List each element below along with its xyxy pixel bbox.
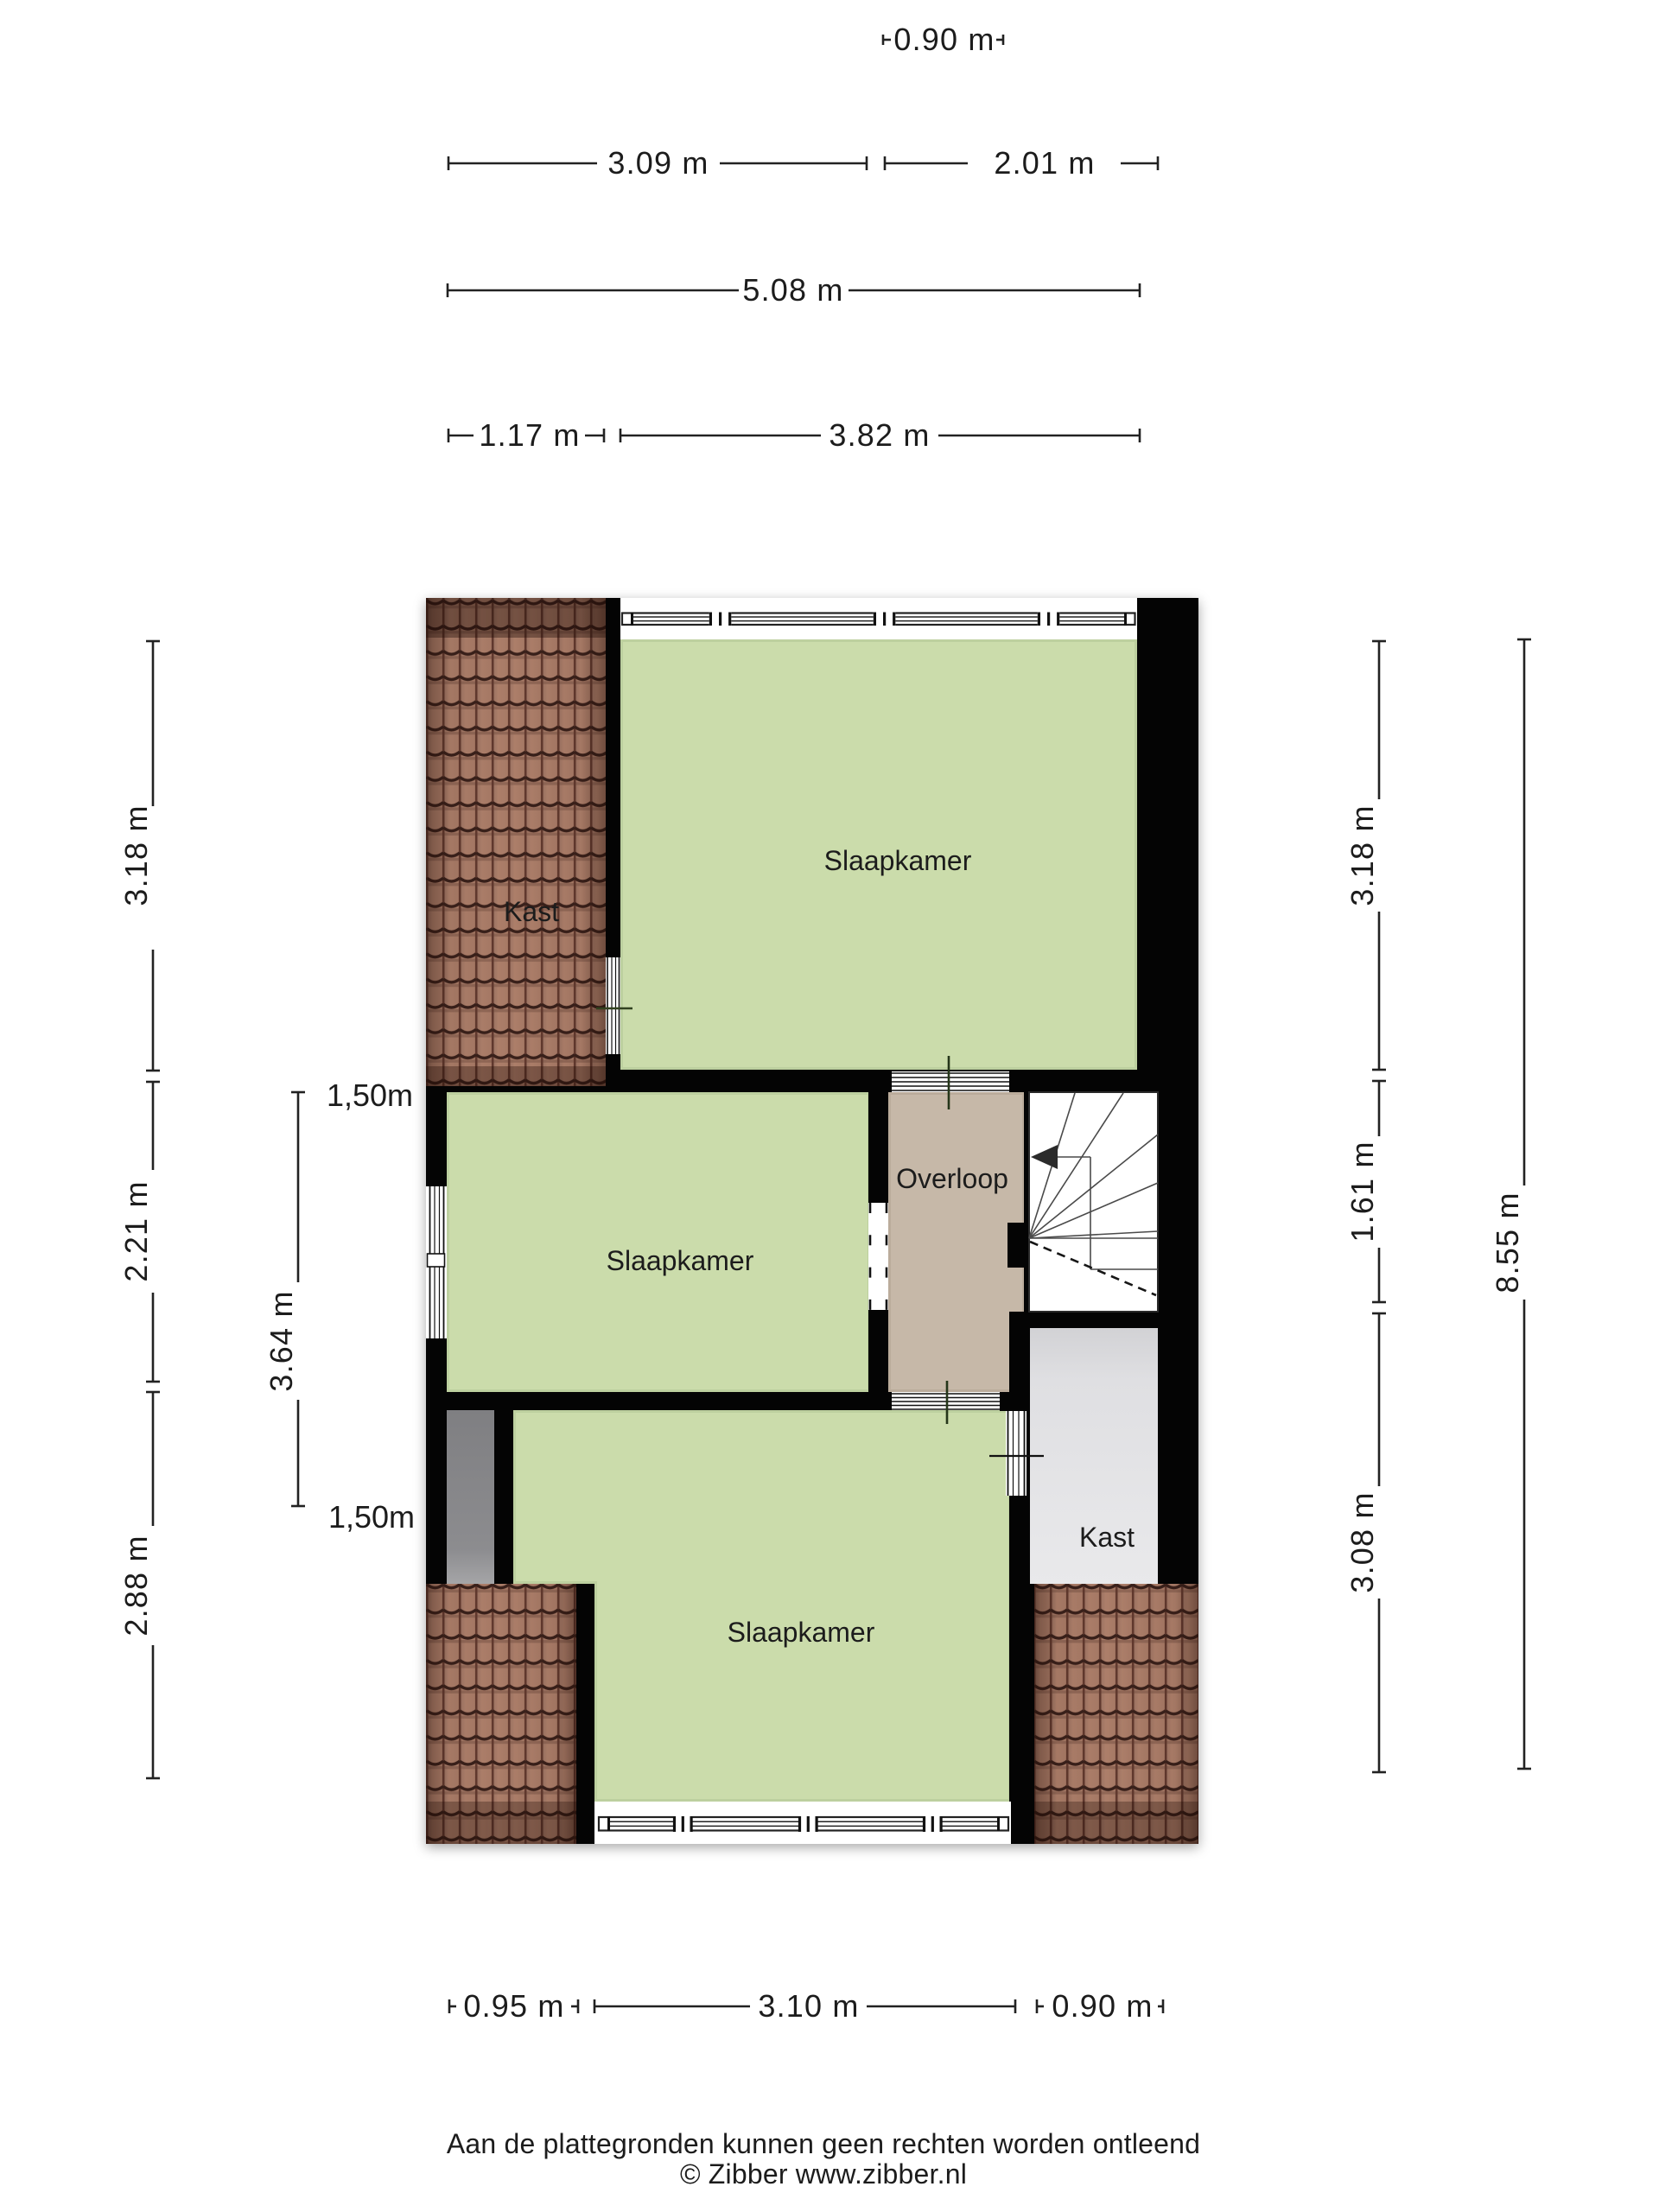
svg-text:1.17 m: 1.17 m — [479, 417, 580, 453]
svg-text:0.90 m: 0.90 m — [893, 22, 995, 57]
svg-text:1.61 m: 1.61 m — [1344, 1141, 1380, 1242]
svg-text:3.82 m: 3.82 m — [829, 417, 930, 453]
svg-text:2.01 m: 2.01 m — [994, 145, 1095, 181]
svg-text:0.90 m: 0.90 m — [1052, 1988, 1153, 2024]
svg-text:2.88 m: 2.88 m — [118, 1535, 154, 1636]
svg-text:Kast: Kast — [504, 896, 559, 927]
svg-text:Aan de plattegronden kunnen ge: Aan de plattegronden kunnen geen rechten… — [447, 2128, 1200, 2159]
svg-text:3.09 m: 3.09 m — [607, 145, 709, 181]
svg-text:3.18 m: 3.18 m — [1344, 804, 1380, 906]
svg-text:2.21 m: 2.21 m — [118, 1180, 154, 1281]
svg-text:8.55 m: 8.55 m — [1490, 1192, 1525, 1293]
svg-text:Slaapkamer: Slaapkamer — [728, 1617, 875, 1648]
svg-text:Slaapkamer: Slaapkamer — [607, 1245, 754, 1276]
svg-text:© Zibber www.zibber.nl: © Zibber www.zibber.nl — [680, 2158, 967, 2190]
svg-text:0.95 m: 0.95 m — [463, 1988, 564, 2024]
svg-text:3.08 m: 3.08 m — [1344, 1491, 1380, 1592]
svg-text:3.18 m: 3.18 m — [118, 804, 154, 906]
svg-text:Kast: Kast — [1079, 1522, 1135, 1553]
svg-text:Overloop: Overloop — [896, 1163, 1008, 1194]
svg-text:3.10 m: 3.10 m — [758, 1988, 859, 2024]
svg-text:3.64 m: 3.64 m — [264, 1290, 299, 1391]
svg-text:1,50m: 1,50m — [327, 1077, 413, 1113]
svg-text:Slaapkamer: Slaapkamer — [824, 845, 972, 876]
svg-text:5.08 m: 5.08 m — [742, 272, 843, 308]
svg-text:1,50m: 1,50m — [328, 1499, 415, 1535]
